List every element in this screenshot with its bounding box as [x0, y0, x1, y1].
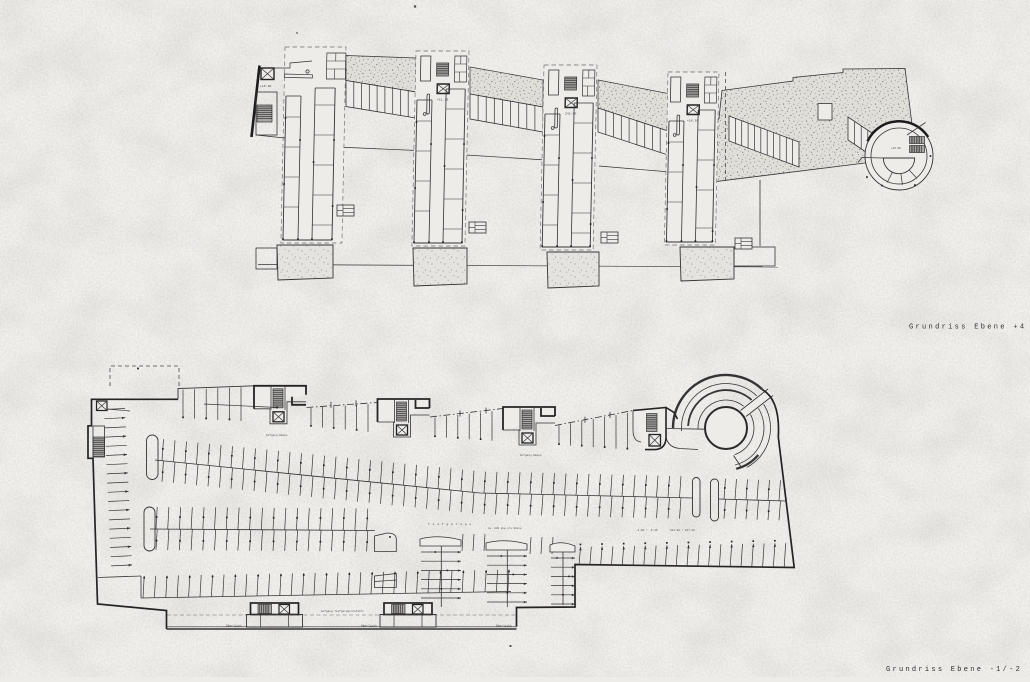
svg-text:Oberlicht: Oberlicht	[226, 624, 242, 628]
svg-text:Aufgang Rampe: Aufgang Rampe	[266, 433, 288, 437]
svg-text:Aufgang Rampe: Aufgang Rampe	[520, 453, 542, 457]
svg-text:Grundriss Ebene -1/-2: Grundriss Ebene -1/-2	[886, 666, 1022, 674]
svg-text:242.90: 242.90	[565, 113, 577, 116]
svg-text:324.90 / 227.10: 324.90 / 227.10	[670, 528, 695, 532]
svg-text:Aufgang Tiefgaragenzufahrt: Aufgang Tiefgaragenzufahrt	[321, 609, 364, 613]
svg-text:-2.60 / -6.35: -2.60 / -6.35	[636, 528, 658, 532]
svg-text:Oberlicht: Oberlicht	[361, 624, 377, 628]
svg-text:+15.30: +15.30	[891, 147, 901, 150]
svg-text:+15.30: +15.30	[260, 85, 272, 88]
svg-text:+10.30: +10.30	[687, 120, 699, 123]
svg-text:Grundriss Ebene +4: Grundriss Ebene +4	[909, 324, 1026, 332]
svg-text:+11.30: +11.30	[437, 99, 449, 102]
svg-text:T i e f g a r a g e: T i e f g a r a g e	[428, 522, 472, 526]
svg-text:ca. 800 pkw pro Ebene: ca. 800 pkw pro Ebene	[488, 527, 522, 530]
svg-text:Oberlicht: Oberlicht	[496, 624, 512, 628]
